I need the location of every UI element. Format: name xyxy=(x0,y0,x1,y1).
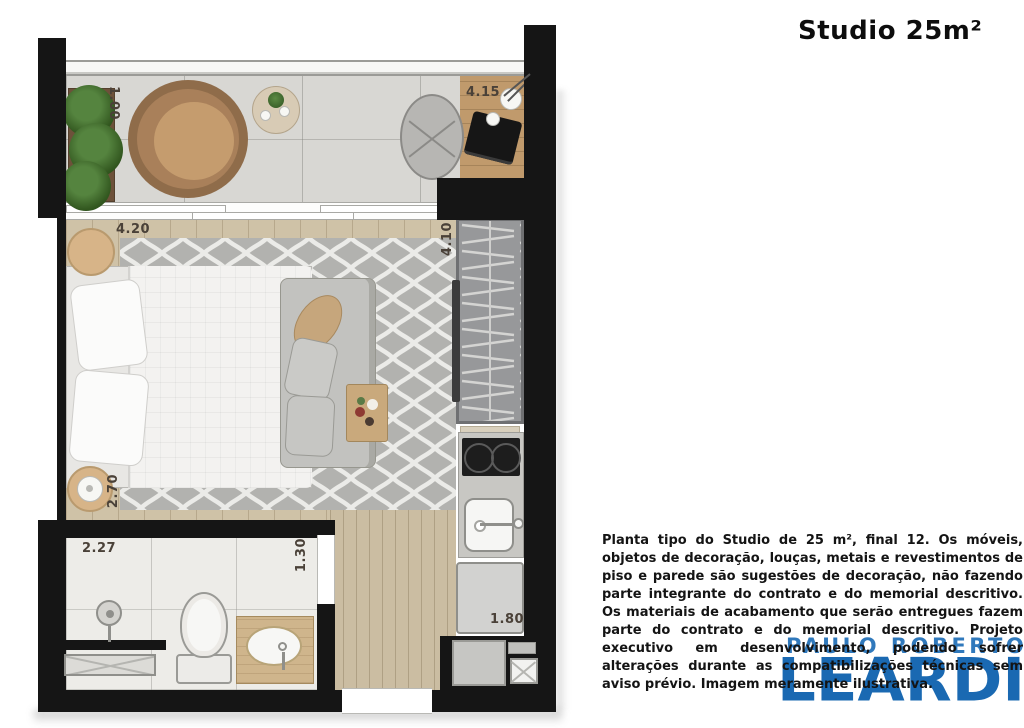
shower-grate xyxy=(64,654,156,676)
toilet-tank xyxy=(176,654,232,684)
plan-shadow-bottom xyxy=(34,710,562,724)
floor-plan-page: 1.00 4.15 4.20 4.10 2.70 2.27 1.30 1.80 … xyxy=(0,0,1024,728)
wall-bathroom-right xyxy=(317,604,335,690)
closet-door-rail xyxy=(452,280,460,402)
disclaimer-text: Planta tipo do Studio de 25 m², final 12… xyxy=(602,532,1023,693)
floor-plan: 1.00 4.15 4.20 4.10 2.70 2.27 1.30 1.80 xyxy=(0,0,580,728)
leaf-icon xyxy=(357,397,365,405)
shower-partition xyxy=(66,640,166,650)
faucet-knob xyxy=(513,518,524,529)
cup-icon xyxy=(279,106,290,117)
shelf-bar xyxy=(508,642,536,654)
wall-left-mid xyxy=(57,218,66,522)
wall-left-bottom xyxy=(38,520,66,712)
flower-icon xyxy=(365,417,374,426)
shower-mixer xyxy=(96,600,122,626)
shower-pipe xyxy=(108,626,111,642)
page-title: Studio 25m² xyxy=(798,16,982,46)
bathroom-door-opening xyxy=(317,535,335,604)
cup-icon xyxy=(486,112,500,126)
dim-closet-wall: 4.10 xyxy=(440,222,455,256)
bathroom-faucet xyxy=(278,642,287,651)
sliding-door xyxy=(63,202,440,220)
wall-bathroom-top xyxy=(38,520,335,538)
dim-balcony-depth: 1.00 xyxy=(106,86,121,120)
bathroom-sink xyxy=(246,626,302,666)
plan-shadow-right xyxy=(556,90,568,710)
dim-bathroom-length: 2.27 xyxy=(82,541,116,556)
dim-balcony-length: 4.15 xyxy=(466,85,500,100)
lounge-chair xyxy=(128,80,248,198)
entrance-door-opening xyxy=(342,688,432,714)
flower-icon xyxy=(355,407,365,417)
pouf-top xyxy=(67,228,115,276)
dim-bedroom-length: 4.20 xyxy=(116,222,150,237)
drain-icon xyxy=(474,520,486,532)
closet-hangers xyxy=(459,221,521,421)
toilet xyxy=(180,592,228,658)
sofa-cushion xyxy=(284,395,335,457)
coffee-table xyxy=(252,86,300,134)
dim-bedroom-width: 2.70 xyxy=(106,474,121,508)
entry-cabinet xyxy=(452,640,506,686)
wall-right xyxy=(524,25,556,712)
dim-kitchen-width: 1.80 xyxy=(490,612,524,627)
shaft-marker xyxy=(510,658,538,684)
plant-icon xyxy=(61,161,111,211)
sliding-door-panel xyxy=(192,212,354,220)
balcony-railing xyxy=(66,60,524,76)
decor-tray xyxy=(346,384,388,442)
bathroom-faucet-stem xyxy=(282,652,285,670)
wall-left-top xyxy=(38,38,66,218)
pillow xyxy=(68,369,150,467)
dim-bathroom-width: 1.30 xyxy=(294,538,309,572)
burner-icon xyxy=(491,443,521,473)
flower-icon xyxy=(367,399,378,410)
wall-desk-step xyxy=(437,178,524,220)
entry-floor xyxy=(330,508,456,690)
desk-chair xyxy=(400,94,464,180)
sliding-door-panel xyxy=(320,205,440,213)
closet xyxy=(456,218,524,424)
pillow xyxy=(69,278,149,372)
cup-icon xyxy=(260,110,271,121)
burner-icon xyxy=(464,443,494,473)
cooktop xyxy=(462,438,520,476)
